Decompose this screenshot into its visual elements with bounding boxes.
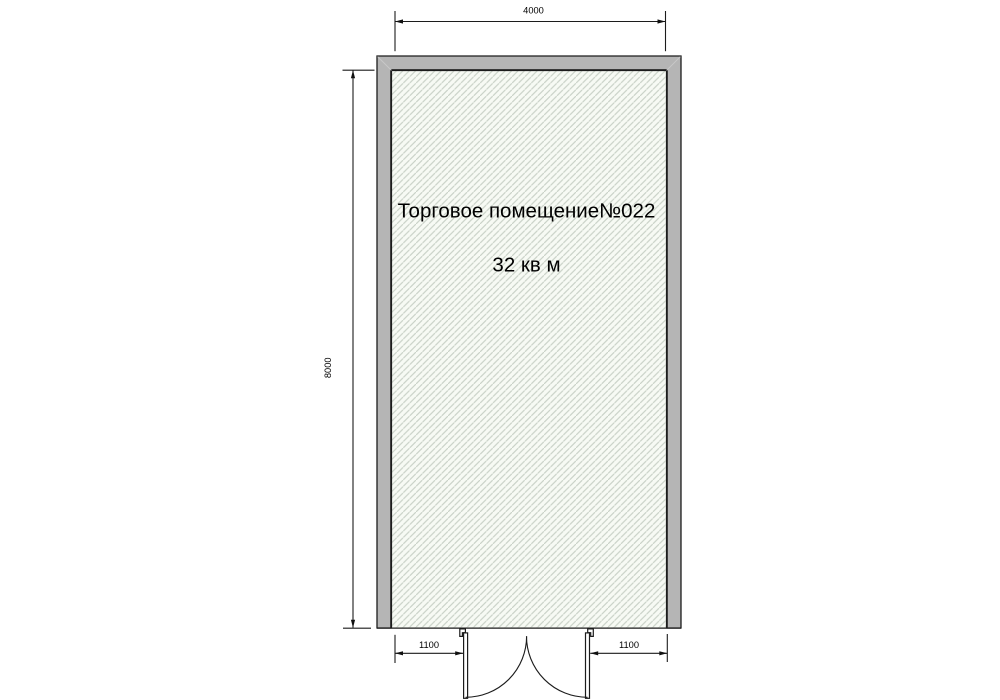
svg-text:4000: 4000 (523, 5, 544, 15)
svg-text:32 кв м: 32 кв м (492, 254, 560, 277)
svg-text:1100: 1100 (419, 640, 439, 650)
svg-text:8000: 8000 (323, 357, 333, 378)
svg-text:Торговое помещение№022: Торговое помещение№022 (398, 200, 656, 223)
svg-text:1100: 1100 (619, 640, 639, 650)
